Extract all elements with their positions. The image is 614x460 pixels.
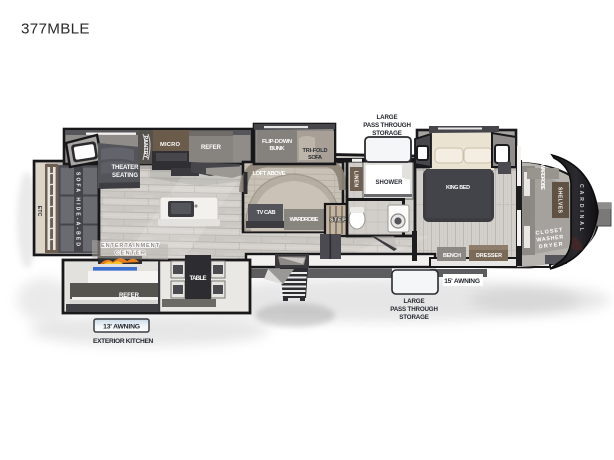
svg-text:15' AWNING: 15' AWNING xyxy=(444,278,480,285)
svg-text:KING BED: KING BED xyxy=(446,185,470,191)
svg-text:REFER: REFER xyxy=(201,145,222,151)
svg-text:ENTERTAINMENT: ENTERTAINMENT xyxy=(101,243,160,249)
svg-text:LINEN: LINEN xyxy=(353,171,359,187)
svg-text:WARDROBE: WARDROBE xyxy=(539,164,545,191)
svg-text:DRESSER: DRESSER xyxy=(476,253,502,259)
svg-text:SOFA: SOFA xyxy=(308,155,322,161)
svg-text:LOFT ABOVE: LOFT ABOVE xyxy=(253,171,286,177)
svg-text:SHELVES: SHELVES xyxy=(557,187,563,214)
svg-text:PASS THROUGH: PASS THROUGH xyxy=(363,122,411,129)
svg-text:THEATER: THEATER xyxy=(112,165,140,171)
svg-text:LARGE: LARGE xyxy=(377,114,398,121)
svg-text:377MBLE: 377MBLE xyxy=(21,21,90,38)
svg-text:SHOWER: SHOWER xyxy=(376,180,404,186)
svg-text:13' AWNING: 13' AWNING xyxy=(103,324,140,331)
svg-text:BENCH: BENCH xyxy=(443,253,461,259)
svg-text:LARGE: LARGE xyxy=(404,298,425,305)
svg-text:FLIP-DOWN: FLIP-DOWN xyxy=(262,139,292,145)
svg-text:REFER: REFER xyxy=(119,293,140,299)
svg-text:TRI-FOLD: TRI-FOLD xyxy=(303,148,328,154)
svg-text:TV CAB: TV CAB xyxy=(257,210,276,216)
svg-text:EXTERIOR KITCHEN: EXTERIOR KITCHEN xyxy=(93,338,154,345)
svg-text:MICRO: MICRO xyxy=(160,142,180,148)
svg-text:PASS THROUGH: PASS THROUGH xyxy=(390,306,438,313)
svg-text:STORAGE: STORAGE xyxy=(399,314,428,321)
svg-text:CARDINAL: CARDINAL xyxy=(578,184,584,232)
svg-text:BUNK: BUNK xyxy=(270,146,286,152)
svg-text:ETC: ETC xyxy=(36,206,42,217)
svg-text:SEATING: SEATING xyxy=(112,173,138,179)
svg-text:TABLE: TABLE xyxy=(190,276,207,282)
svg-text:PANTRY: PANTRY xyxy=(142,136,148,159)
svg-text:WARDROBE: WARDROBE xyxy=(290,217,319,223)
svg-text:STORAGE: STORAGE xyxy=(372,130,401,137)
